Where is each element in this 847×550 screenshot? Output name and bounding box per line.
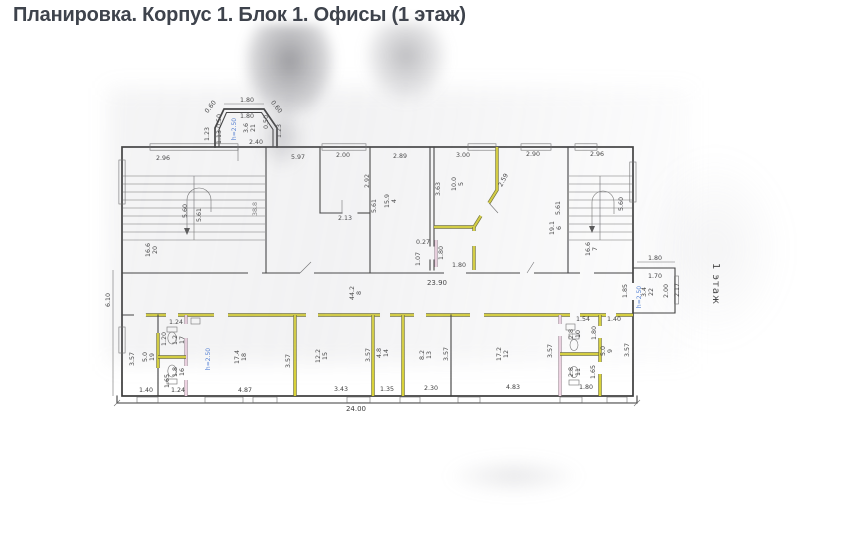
corridor-walls xyxy=(122,262,633,315)
svg-text:5.0: 5.0 xyxy=(600,346,607,356)
dimension-labels: 2.96 5.97 2.00 2.89 3.00 2.90 2.96 1.80 … xyxy=(105,97,681,413)
svg-text:17: 17 xyxy=(179,336,186,344)
svg-text:4.8: 4.8 xyxy=(376,348,383,358)
dim-label: 2.59 xyxy=(497,172,510,188)
room-label-13: 138.2 xyxy=(419,350,433,360)
dim-label: 2.92 xyxy=(364,174,371,188)
dim-label: 1.80 xyxy=(579,384,593,391)
floor-plan-drawing: 2.96 5.97 2.00 2.89 3.00 2.90 2.96 1.80 … xyxy=(0,0,847,550)
dim-label: 3.00 xyxy=(456,152,470,159)
svg-text:10: 10 xyxy=(575,330,582,338)
svg-text:1.2: 1.2 xyxy=(172,335,179,345)
dim-label: 1.07 xyxy=(415,252,422,266)
svg-text:1.8: 1.8 xyxy=(172,367,179,377)
svg-text:16.6: 16.6 xyxy=(585,242,592,256)
svg-text:2.8: 2.8 xyxy=(568,367,575,377)
dim-label: 2.00 xyxy=(663,284,670,298)
svg-text:14: 14 xyxy=(383,349,390,357)
dim-label: 1.40 xyxy=(139,387,153,394)
room-label-12: 1217.2 xyxy=(496,347,510,361)
dim-label: 2.13 xyxy=(338,215,352,222)
dim-label: 1.23 xyxy=(204,127,211,141)
dim-label: 2.89 xyxy=(393,153,407,160)
dim-label: 1.80 xyxy=(240,97,254,104)
dim-label: 1.80 xyxy=(648,255,662,262)
radiator-icon xyxy=(191,318,200,324)
svg-text:19.1: 19.1 xyxy=(549,221,556,235)
svg-text:15.9: 15.9 xyxy=(384,194,391,208)
svg-text:16: 16 xyxy=(179,368,186,376)
dim-label: 3.63 xyxy=(435,182,442,196)
dim-label: 0.60 xyxy=(204,99,218,114)
dim-label: 2.00 xyxy=(336,152,350,159)
floor-label: 1 этаж xyxy=(710,263,721,305)
dim-label: 4.87 xyxy=(238,387,252,394)
dim-label: 1.24 xyxy=(169,319,183,326)
svg-text:3.6: 3.6 xyxy=(243,123,250,133)
svg-text:3.4: 3.4 xyxy=(641,287,648,297)
svg-text:17.4: 17.4 xyxy=(234,350,241,364)
dim-label: 1.35 xyxy=(380,386,394,393)
svg-text:7: 7 xyxy=(592,247,599,251)
dim-label: 2.96 xyxy=(156,155,170,162)
room-label-7: 716.6 xyxy=(585,242,599,256)
dim-label: 2.96 xyxy=(590,151,604,158)
dim-label: 24.00 xyxy=(346,405,366,413)
svg-text:5: 5 xyxy=(458,182,465,186)
dim-label: 5.97 xyxy=(291,154,305,161)
svg-text:12.2: 12.2 xyxy=(315,349,322,363)
room-label-22: 223.4 xyxy=(641,287,655,297)
room-labels: 38.8 415.9 510.0 619.1 716.6 844.2 95.0 … xyxy=(142,123,655,377)
height-note: h=2.50 xyxy=(205,348,212,370)
room-label-9: 95.0 xyxy=(600,346,614,356)
svg-text:2.8: 2.8 xyxy=(568,329,575,339)
dim-label: 3.57 xyxy=(443,347,450,361)
dim-label: 1.54 xyxy=(576,316,590,323)
lower-rooms-walls xyxy=(158,315,451,396)
dim-label: 1.20 xyxy=(161,332,168,346)
dim-label: 1.80 xyxy=(240,113,254,120)
dim-label: 1.65 xyxy=(590,365,597,379)
room-label-20: 2016.6 xyxy=(145,243,159,257)
dim-label: 4.83 xyxy=(506,384,520,391)
svg-text:17.2: 17.2 xyxy=(496,347,503,361)
svg-text:22: 22 xyxy=(648,288,655,296)
svg-text:8.2: 8.2 xyxy=(419,350,426,360)
svg-text:9: 9 xyxy=(607,349,614,353)
dim-label: 0.27 xyxy=(416,239,430,246)
room-label-5: 510.0 xyxy=(451,177,465,191)
dim-label: 3.57 xyxy=(129,352,136,366)
stair-direction-arrow xyxy=(592,191,614,232)
room-label-15: 1512.2 xyxy=(315,349,329,363)
dim-label: 3.57 xyxy=(365,348,372,362)
dim-label: 0.50 xyxy=(216,114,223,128)
room-label-17: 171.2 xyxy=(172,335,186,345)
dim-label: 3.57 xyxy=(547,344,554,358)
dim-label: 1.13 xyxy=(216,130,223,144)
dim-label: 3.43 xyxy=(334,386,348,393)
dim-label: 5.61 xyxy=(371,199,378,213)
dim-label: 1.80 xyxy=(452,262,466,269)
room-label-14: 144.8 xyxy=(376,348,390,358)
dim-label: 1.23 xyxy=(276,124,283,138)
dim-label: 1.65 xyxy=(164,374,171,388)
dim-label: 5.60 xyxy=(182,204,189,218)
room-label-6: 619.1 xyxy=(549,221,563,235)
dim-label: 1.40 xyxy=(607,316,621,323)
svg-text:18: 18 xyxy=(241,353,248,361)
dim-label: 23.90 xyxy=(427,279,447,287)
svg-text:16.6: 16.6 xyxy=(145,243,152,257)
dim-label: 1.80 xyxy=(438,246,445,260)
svg-text:5.0: 5.0 xyxy=(142,352,149,362)
dim-label: 2.30 xyxy=(424,385,438,392)
dim-label: 0.50 xyxy=(263,115,270,129)
room-label-19: 195.0 xyxy=(142,352,156,362)
svg-text:20: 20 xyxy=(152,246,159,254)
svg-text:6: 6 xyxy=(556,226,563,230)
height-note: h=2.50 xyxy=(231,118,238,140)
svg-text:10.0: 10.0 xyxy=(451,177,458,191)
dim-label: 1.80 xyxy=(591,326,598,340)
room-label-8-corridor: 844.2 xyxy=(349,286,363,300)
svg-text:13: 13 xyxy=(426,351,433,359)
room-label-16: 161.8 xyxy=(172,367,186,377)
dim-label: 1.70 xyxy=(648,273,662,280)
dim-label: 2.90 xyxy=(526,151,540,158)
page: Планировка. Корпус 1. Блок 1. Офисы (1 э… xyxy=(0,0,847,550)
svg-text:15: 15 xyxy=(322,352,329,360)
svg-text:8: 8 xyxy=(356,291,363,295)
dim-label: 5.61 xyxy=(196,208,203,222)
dim-label: 2.17 xyxy=(674,283,681,297)
dim-label: 1.85 xyxy=(622,284,629,298)
svg-text:12: 12 xyxy=(503,350,510,358)
svg-text:4: 4 xyxy=(391,199,398,203)
room-label-11: 112.8 xyxy=(568,367,582,377)
dim-label: 5.61 xyxy=(555,201,562,215)
svg-text:11: 11 xyxy=(575,368,582,376)
room-label-18: 1817.4 xyxy=(234,350,248,364)
room-label-10: 102.8 xyxy=(568,329,582,339)
dim-label: 2.40 xyxy=(249,139,263,146)
dim-label: 3.57 xyxy=(285,354,292,368)
room-label-4: 415.9 xyxy=(384,194,398,208)
dim-label: 1.24 xyxy=(171,387,185,394)
svg-text:19: 19 xyxy=(149,353,156,361)
dim-label: 6.10 xyxy=(105,293,112,307)
room-label-21: 213.6 xyxy=(243,123,257,133)
dim-label: 3.57 xyxy=(624,343,631,357)
svg-text:44.2: 44.2 xyxy=(349,286,356,300)
dim-label: 0.60 xyxy=(269,99,283,114)
room-label: 38.8 xyxy=(252,202,259,216)
svg-text:21: 21 xyxy=(250,124,257,132)
dim-label: 5.60 xyxy=(618,197,625,211)
